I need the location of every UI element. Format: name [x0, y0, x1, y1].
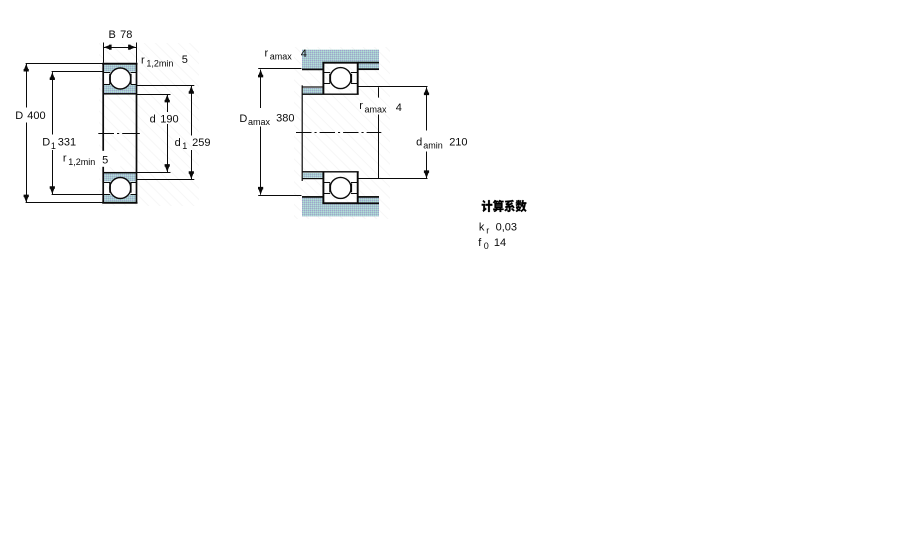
- svg-text:1,2min: 1,2min: [68, 157, 95, 167]
- svg-text:D: D: [15, 110, 23, 122]
- svg-text:r: r: [486, 225, 489, 235]
- svg-text:380: 380: [276, 113, 294, 125]
- svg-text:amax: amax: [365, 105, 388, 115]
- svg-text:amax: amax: [248, 117, 271, 127]
- svg-text:259: 259: [192, 137, 210, 149]
- svg-text:0,03: 0,03: [496, 221, 517, 233]
- svg-text:331: 331: [58, 137, 76, 149]
- svg-text:400: 400: [27, 110, 45, 122]
- svg-text:5: 5: [182, 54, 188, 66]
- svg-text:d: d: [416, 137, 422, 149]
- svg-text:D: D: [42, 137, 50, 149]
- svg-text:d: d: [150, 114, 156, 126]
- svg-text:1,2min: 1,2min: [146, 58, 173, 68]
- svg-text:f: f: [478, 237, 482, 249]
- svg-text:5: 5: [102, 155, 108, 167]
- svg-text:0: 0: [484, 241, 489, 251]
- svg-text:14: 14: [494, 237, 506, 249]
- svg-text:1: 1: [51, 141, 56, 151]
- svg-text:B: B: [109, 29, 116, 41]
- svg-text:D: D: [239, 113, 247, 125]
- svg-text:4: 4: [301, 48, 307, 60]
- svg-text:r: r: [265, 48, 269, 60]
- svg-text:r: r: [141, 54, 145, 66]
- svg-text:r: r: [63, 153, 67, 165]
- svg-text:1: 1: [182, 141, 187, 151]
- svg-text:k: k: [479, 221, 485, 233]
- svg-text:r: r: [359, 100, 363, 112]
- svg-text:d: d: [175, 137, 181, 149]
- svg-text:210: 210: [449, 137, 467, 149]
- svg-text:amin: amin: [423, 141, 443, 151]
- svg-text:78: 78: [120, 29, 132, 41]
- svg-text:amax: amax: [270, 52, 293, 62]
- svg-text:190: 190: [160, 114, 178, 126]
- svg-text:4: 4: [396, 102, 402, 114]
